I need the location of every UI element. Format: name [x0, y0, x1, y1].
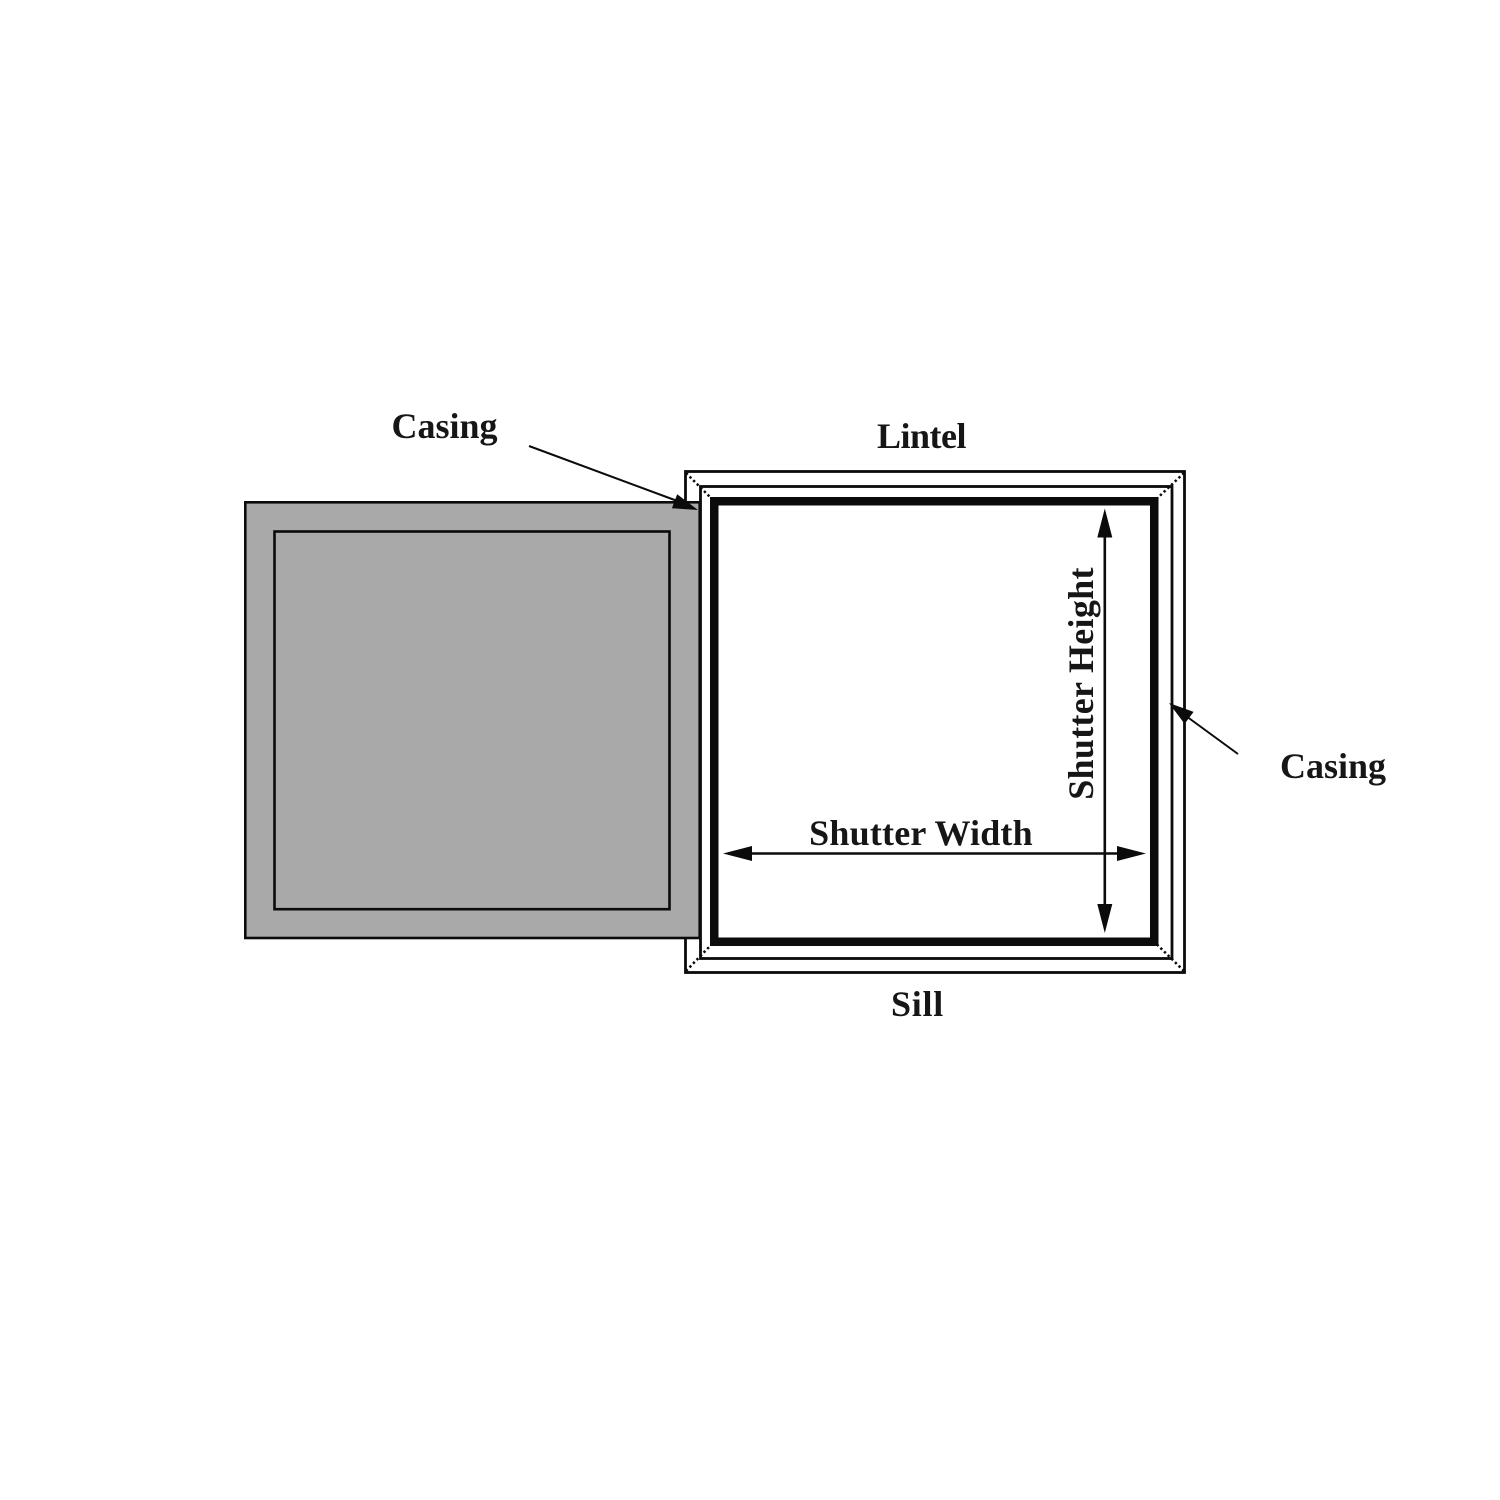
svg-text:Casing: Casing [1280, 746, 1386, 786]
svg-text:Sill: Sill [891, 984, 944, 1024]
svg-text:Shutter Width: Shutter Width [809, 813, 1033, 853]
svg-text:Casing: Casing [391, 406, 497, 446]
svg-text:Lintel: Lintel [877, 416, 967, 456]
svg-text:Shutter Height: Shutter Height [1061, 567, 1101, 800]
